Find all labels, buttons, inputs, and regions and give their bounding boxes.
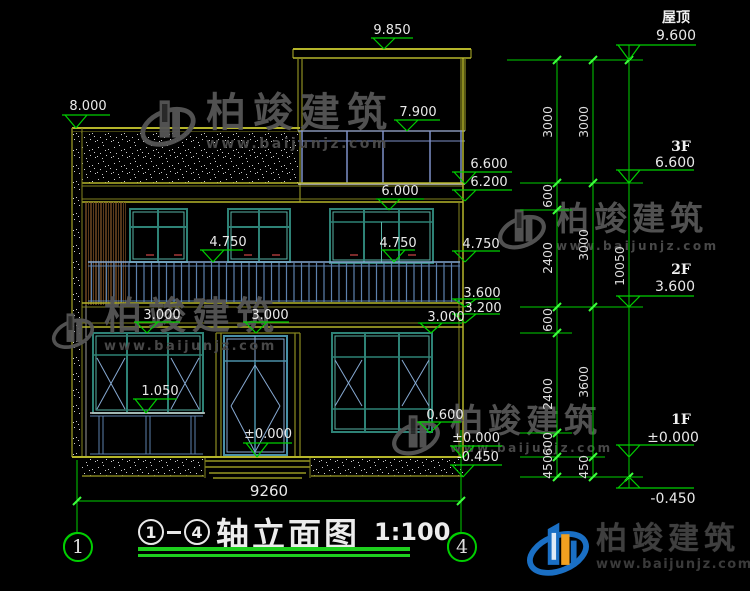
brand-footer: 柏竣建筑 www.baijunjz.com [526,514,750,580]
elevation-mark [62,115,110,128]
elevation-mark [243,322,289,333]
cad-elevation-drawing: 柏竣建筑 www.baijunjz.com 柏竣建筑 www.baijunjz.… [0,0,750,591]
title-underline [138,547,410,557]
brand-name: 柏竣建筑 [596,522,750,556]
elevation-mark [452,190,512,201]
elevation-mark [616,170,694,183]
elevation-mark [243,443,292,457]
elevation-mark [450,465,502,477]
dimension-linework [0,0,750,591]
elevation-mark [616,296,694,307]
axis-number: 1 [72,536,84,558]
elevation-mark [376,199,424,210]
elevation-mark [452,172,512,184]
elevation-mark [371,38,413,49]
elevation-mark [133,399,177,413]
brand-url: www.baijunjz.com [596,557,750,572]
elevation-mark [452,251,500,262]
elevation-mark [616,445,694,457]
elevation-mark [450,446,502,458]
elevation-mark [616,477,694,488]
elevation-mark [616,45,696,60]
title-axis-from: 1 [138,519,164,545]
elevation-mark [418,323,462,333]
dimension-ticks [73,56,633,505]
elevation-mark [452,299,500,307]
title-scale: 1:100 [374,518,450,546]
elevation-mark [381,250,415,262]
axis-number: 4 [456,536,468,558]
elevation-mark [417,422,461,433]
title-axis-to: 4 [184,519,210,545]
dimension-chains [64,45,643,559]
brand-logo-icon [526,514,590,580]
elevation-mark [452,314,500,323]
elevation-mark [394,120,440,131]
axis-bubble-4: 4 [447,532,477,562]
title-dash [167,531,181,534]
axis-bubble-1: 1 [63,532,93,562]
elevation-mark [134,322,180,333]
elevation-mark [200,250,243,262]
elevation-symbols [62,38,696,488]
